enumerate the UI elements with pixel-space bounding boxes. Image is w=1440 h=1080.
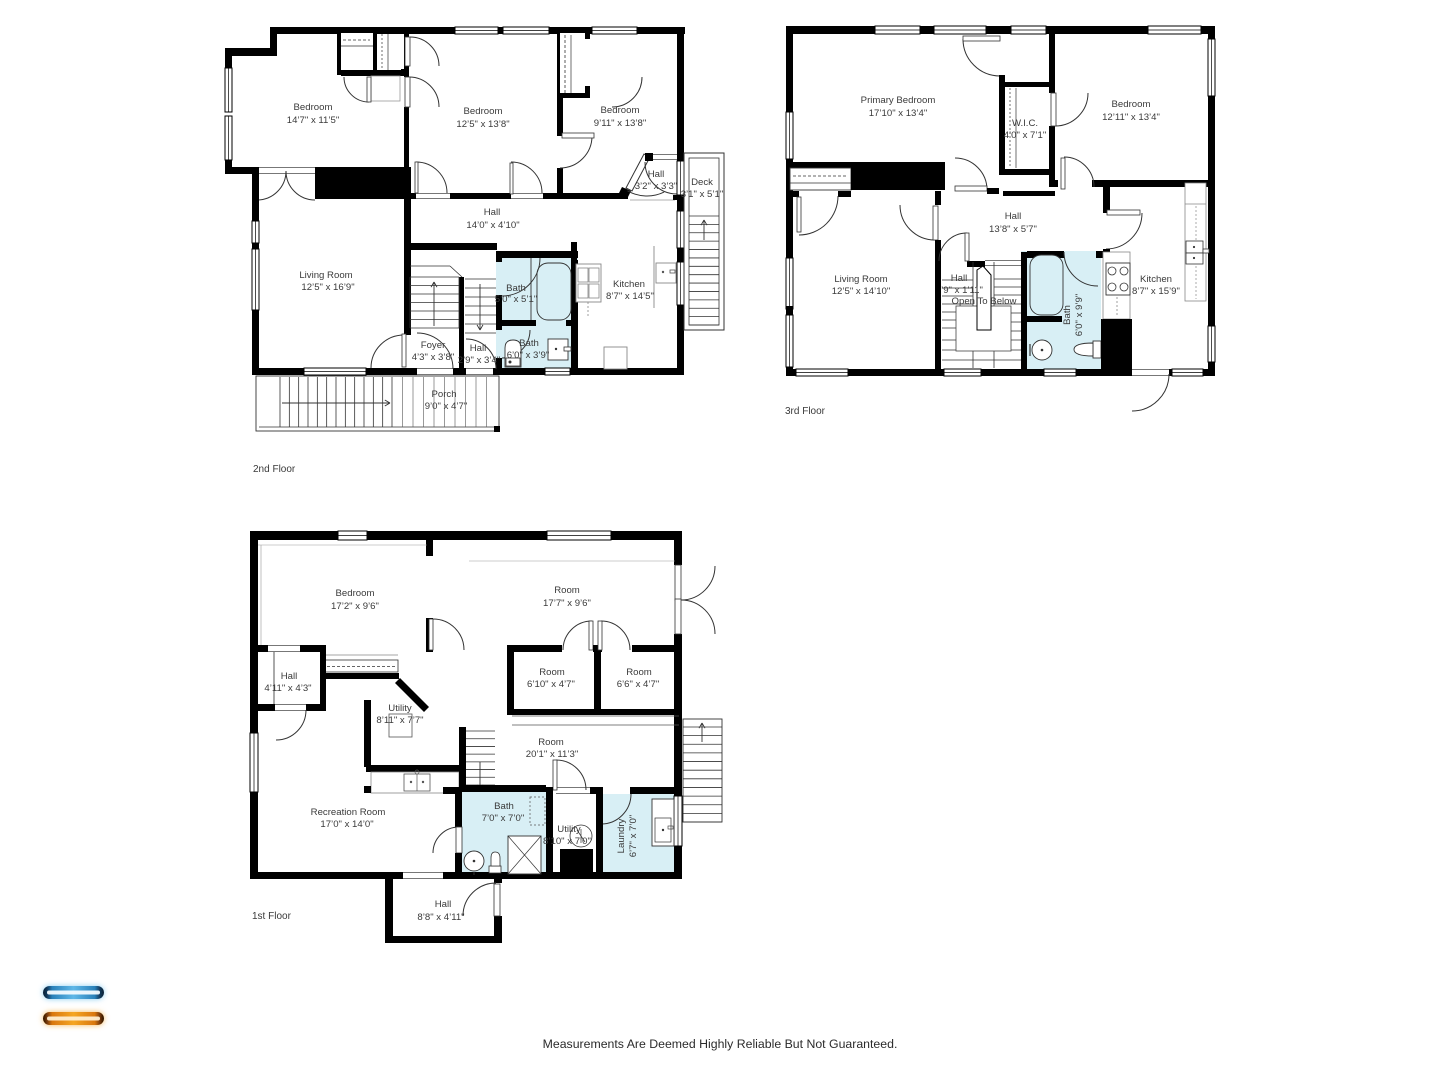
svg-text:5’0" x 5’1": 5’0" x 5’1"	[495, 294, 538, 305]
svg-text:8’8" x 4’11": 8’8" x 4’11"	[417, 912, 464, 923]
svg-text:17’0" x 14’0": 17’0" x 14’0"	[320, 819, 373, 830]
svg-text:Room: Room	[539, 667, 565, 678]
svg-text:Bath: Bath	[519, 338, 539, 349]
svg-text:Measurements Are Deemed Highly: Measurements Are Deemed Highly Reliable …	[543, 1037, 898, 1051]
svg-text:7’0" x 7’0": 7’0" x 7’0"	[482, 813, 525, 824]
svg-text:’9" x 1’11": ’9" x 1’11"	[941, 285, 983, 296]
svg-text:Living Room: Living Room	[834, 274, 887, 285]
svg-text:6’0" x 9’9": 6’0" x 9’9"	[1074, 294, 1085, 337]
svg-text:4’3" x 3’8": 4’3" x 3’8"	[412, 352, 455, 363]
svg-text:Bath: Bath	[494, 801, 514, 812]
svg-text:3rd Floor: 3rd Floor	[785, 406, 826, 417]
svg-text:9’11" x 13’8": 9’11" x 13’8"	[594, 118, 647, 129]
svg-text:3’1" x 5’1": 3’1" x 5’1"	[681, 189, 724, 200]
svg-text:4’11" x 4’3": 4’11" x 4’3"	[264, 683, 311, 694]
svg-text:3’2" x 3’3": 3’2" x 3’3"	[635, 181, 678, 192]
svg-text:4’0" x 7’1": 4’0" x 7’1"	[1004, 130, 1047, 141]
svg-text:8’11" x 7’7": 8’11" x 7’7"	[376, 715, 423, 726]
svg-text:12’5" x 14’10": 12’5" x 14’10"	[832, 286, 891, 297]
svg-text:Hall: Hall	[484, 207, 501, 218]
svg-text:1st Floor: 1st Floor	[252, 911, 292, 922]
svg-text:Kitchen: Kitchen	[1140, 274, 1172, 285]
svg-text:Porch: Porch	[431, 389, 456, 400]
svg-text:6’7" x 7’0": 6’7" x 7’0"	[628, 815, 639, 858]
svg-text:14’7" x 11’5": 14’7" x 11’5"	[287, 115, 340, 126]
svg-text:12’5" x 13’8": 12’5" x 13’8"	[456, 119, 509, 130]
svg-text:Hall: Hall	[435, 899, 452, 910]
svg-text:Hall: Hall	[281, 671, 298, 682]
svg-text:Room: Room	[626, 667, 652, 678]
svg-text:12’5" x 16’9": 12’5" x 16’9"	[301, 282, 354, 293]
svg-text:14’0" x 4’10": 14’0" x 4’10"	[466, 220, 519, 231]
svg-text:Utility: Utility	[557, 824, 581, 835]
svg-text:6’0" x 3’9": 6’0" x 3’9"	[507, 350, 550, 361]
svg-text:Room: Room	[538, 737, 564, 748]
svg-text:6’10" x 4’7": 6’10" x 4’7"	[527, 679, 575, 690]
svg-text:2nd Floor: 2nd Floor	[253, 464, 296, 475]
svg-text:17’7" x 9’6": 17’7" x 9’6"	[543, 598, 591, 609]
svg-text:Kitchen: Kitchen	[613, 279, 645, 290]
svg-text:Living Room: Living Room	[299, 270, 352, 281]
svg-text:20’1" x 11’3": 20’1" x 11’3"	[526, 749, 579, 760]
svg-text:12’11" x 13’4": 12’11" x 13’4"	[1102, 112, 1160, 123]
svg-text:Bedroom: Bedroom	[464, 106, 503, 117]
svg-text:W.I.C.: W.I.C.	[1012, 118, 1038, 129]
svg-text:9’0" x 4’7": 9’0" x 4’7"	[425, 401, 468, 412]
svg-text:Bath: Bath	[506, 283, 526, 294]
svg-text:8’10" x 7’0": 8’10" x 7’0"	[543, 836, 591, 847]
svg-text:Hall: Hall	[1005, 211, 1022, 222]
svg-text:Recreation Room: Recreation Room	[311, 807, 386, 818]
svg-text:Bedroom: Bedroom	[294, 102, 333, 113]
svg-text:Bedroom: Bedroom	[336, 588, 375, 599]
svg-text:Utility: Utility	[388, 703, 412, 714]
svg-text:17’2" x 9’6": 17’2" x 9’6"	[331, 601, 379, 612]
svg-text:Foyer: Foyer	[421, 340, 446, 351]
svg-text:13’8" x 5’7": 13’8" x 5’7"	[989, 224, 1037, 235]
svg-text:Laundry: Laundry	[616, 818, 627, 853]
svg-text:Bath: Bath	[1062, 305, 1073, 325]
svg-text:Bedroom: Bedroom	[1112, 99, 1151, 110]
svg-text:Hall: Hall	[951, 273, 968, 284]
svg-text:Deck: Deck	[691, 177, 713, 188]
svg-text:Open To Below: Open To Below	[952, 296, 1017, 307]
svg-text:2’9" x 3’4": 2’9" x 3’4"	[458, 355, 501, 366]
svg-text:Primary Bedroom: Primary Bedroom	[861, 95, 936, 106]
svg-text:Hall: Hall	[470, 343, 487, 354]
svg-text:8’7" x 15’9": 8’7" x 15’9"	[1132, 286, 1180, 297]
svg-text:Bedroom: Bedroom	[601, 105, 640, 116]
svg-text:8’7" x 14’5": 8’7" x 14’5"	[606, 291, 654, 302]
svg-text:Room: Room	[554, 585, 580, 596]
svg-text:17’10" x 13’4": 17’10" x 13’4"	[869, 108, 928, 119]
svg-text:6’6" x 4’7": 6’6" x 4’7"	[617, 679, 660, 690]
svg-text:Hall: Hall	[648, 169, 665, 180]
